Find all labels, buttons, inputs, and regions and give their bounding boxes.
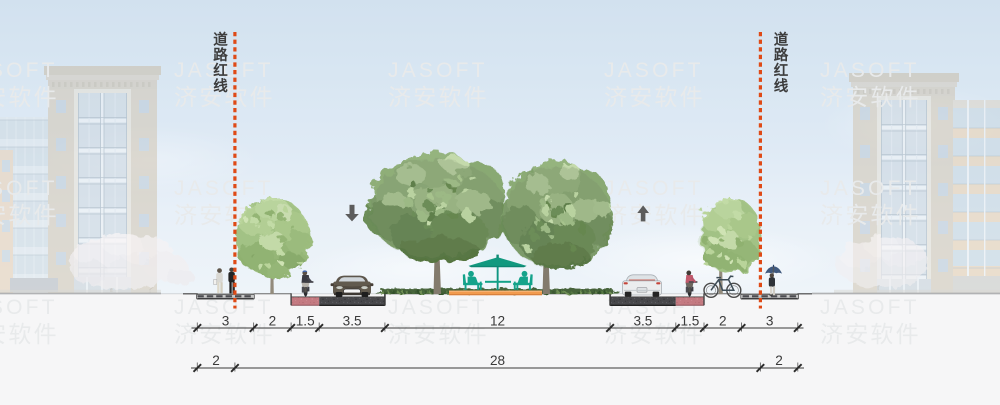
svg-text:路: 路 <box>213 46 228 64</box>
svg-text:3: 3 <box>222 314 230 329</box>
svg-text:3.5: 3.5 <box>633 314 652 329</box>
svg-text:红: 红 <box>213 62 228 80</box>
svg-text:2: 2 <box>775 353 783 368</box>
svg-text:2: 2 <box>212 353 220 368</box>
svg-text:1.5: 1.5 <box>680 314 699 329</box>
svg-text:12: 12 <box>490 314 505 329</box>
svg-text:2: 2 <box>719 314 727 329</box>
svg-text:28: 28 <box>490 353 505 368</box>
svg-text:线: 线 <box>213 77 228 95</box>
svg-text:红: 红 <box>774 62 789 80</box>
svg-text:3.5: 3.5 <box>343 314 362 329</box>
svg-text:路: 路 <box>774 46 789 64</box>
svg-text:线: 线 <box>774 77 789 95</box>
svg-text:道: 道 <box>774 31 789 49</box>
svg-text:道: 道 <box>213 31 228 49</box>
svg-text:2: 2 <box>269 314 277 329</box>
svg-text:1.5: 1.5 <box>296 314 315 329</box>
svg-text:3: 3 <box>766 314 774 329</box>
